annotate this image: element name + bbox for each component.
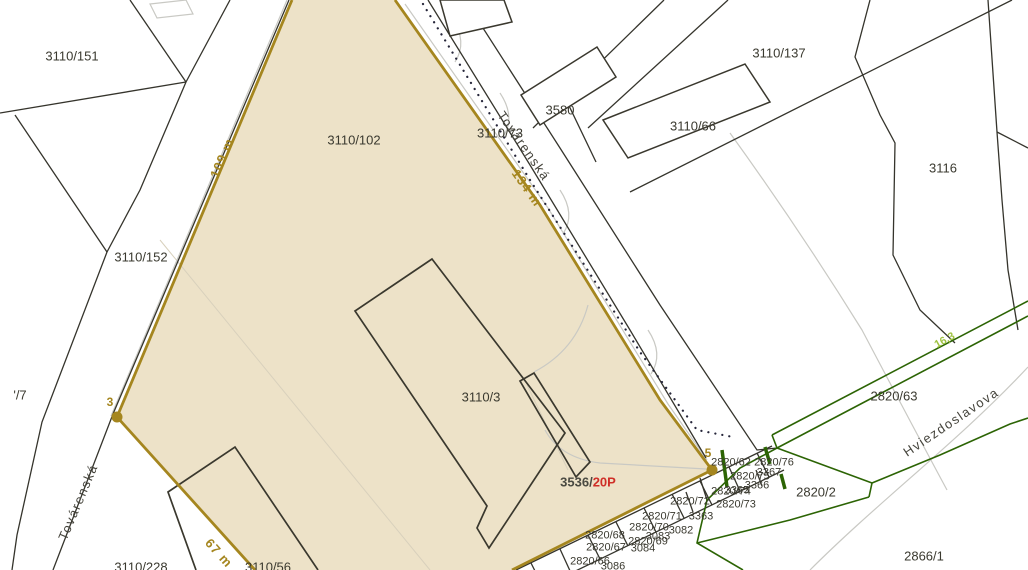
parcel-2820-74: 2820/74: [711, 487, 751, 498]
detail-plan-label-part-1: 20P: [593, 475, 616, 490]
parcel-3086: 3086: [601, 562, 625, 570]
street-hviezdoslavova: Hviezdoslavova: [901, 385, 1001, 458]
parcel-2866-1: 2866/1: [904, 550, 944, 563]
parcel-2820-72: 2820/72: [670, 497, 710, 508]
parcel-3110-66: 3110/66: [670, 120, 716, 133]
street-tovarenska-top: Továrenská: [495, 109, 552, 183]
parcel-2820-73: 2820/73: [716, 500, 756, 511]
edge-length-134m: 134 m: [510, 167, 545, 209]
parcel-3110-151: 3110/151: [45, 50, 98, 63]
parcel-3083: 3083: [646, 532, 670, 543]
parcel-3082: 3082: [669, 526, 693, 537]
parcel-slash7: '/7: [13, 389, 26, 402]
boundary-point-5-label: 5: [705, 447, 712, 459]
parcel-3366: 3366: [745, 481, 769, 492]
parcel-3363: 3363: [689, 512, 713, 523]
parcel-3110-102: 3110/102: [327, 134, 380, 147]
parcel-2820-63: 2820/63: [871, 390, 918, 403]
detail-plan-label-part-0: 3536/: [560, 475, 593, 490]
parcel-2820-71: 2820/71: [642, 512, 682, 523]
parcel-3116: 3116: [929, 162, 957, 175]
cadastral-map-screen[interactable]: 3110/1513110/1023110/13735803110/6631163…: [0, 0, 1028, 570]
parcel-3110-3: 3110/3: [462, 391, 501, 404]
parcel-2820-68: 2820/68: [585, 531, 625, 542]
parcel-2820-69: 2820/69: [628, 537, 668, 548]
parcel-3367: 3367: [757, 468, 781, 479]
edge-length-67m: 67 m: [203, 536, 235, 570]
parcel-3580: 3580: [546, 104, 575, 117]
parcel-3110-137: 3110/137: [752, 47, 805, 60]
parcel-2820-2: 2820/2: [796, 486, 836, 499]
parcel-3110-228: 3110/228: [114, 561, 167, 570]
parcel-2820-62: 2820/62: [711, 458, 751, 469]
parcel-3084: 3084: [631, 544, 655, 555]
detail-plan-label: 3536/20P: [560, 476, 616, 489]
boundary-point-3-label: 3: [107, 396, 114, 408]
parcel-2820-76: 2820/76: [754, 458, 794, 469]
parcel-3110-73: 3110/73: [477, 127, 523, 140]
street-tovarenska-bottom: Továrenská: [56, 462, 100, 542]
parcel-2820-70: 2820/70: [629, 523, 669, 534]
parcel-2820-75: 2820/75: [730, 472, 770, 483]
parcel-3110-152: 3110/152: [114, 251, 167, 264]
map-labels-layer: 3110/1513110/1023110/13735803110/6631163…: [0, 0, 1028, 570]
green-measure-16-3: 16,3: [933, 331, 957, 351]
parcel-3110-56: 3110/56: [245, 561, 291, 570]
parcel-3365: 3365: [725, 486, 749, 497]
edge-length-109m: 109 m: [208, 136, 236, 180]
parcel-2820-66: 2820/66: [570, 557, 610, 568]
parcel-2820-67: 2820/67: [586, 543, 626, 554]
